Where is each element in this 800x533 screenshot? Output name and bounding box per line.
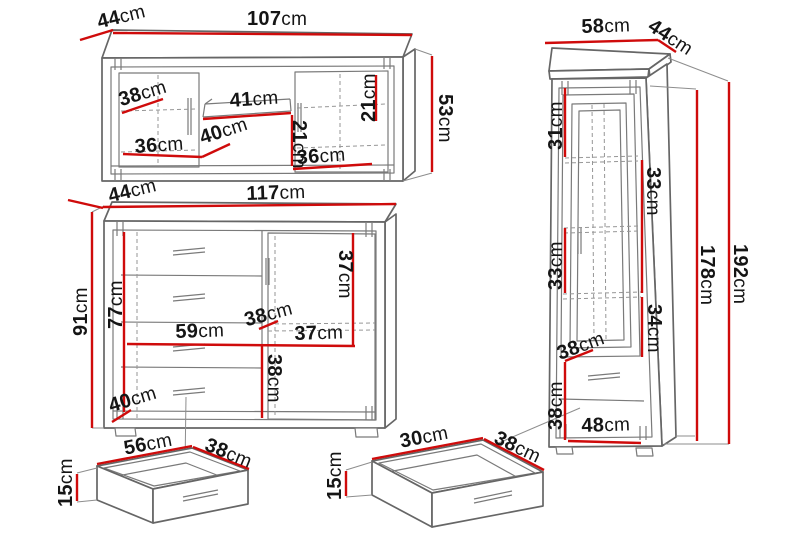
dim-cabinet-total-height: 192cm <box>728 244 751 304</box>
dim-cabinet-glass-bottom: 34cm <box>642 304 665 353</box>
dim-chest-width: 117cm <box>246 181 306 206</box>
dim-cabinet-glass-lower: 33cm <box>545 241 568 290</box>
dim-chest-door-inner-width: 37cm <box>294 321 344 346</box>
dim-drawer-right-height: 15cm <box>324 451 347 500</box>
dim-cabinet-inner-width: 48cm <box>581 413 631 438</box>
dim-cabinet-glass-top: 31cm <box>545 101 568 150</box>
dim-chest-drawers-width: 59cm <box>175 319 225 344</box>
dim-cabinet-glass-upper: 33cm <box>641 167 664 216</box>
dim-chest-inner-height: 77cm <box>105 280 128 329</box>
dim-sideboard-right-inner-width: 36cm <box>296 144 346 170</box>
dim-sideboard-left-inner-width: 36cm <box>134 133 184 159</box>
dim-drawer-left-height: 15cm <box>55 458 78 507</box>
dim-sideboard-right-inner-height: 21cm <box>358 73 381 122</box>
dim-sideboard-shelf-width: 41cm <box>229 87 279 113</box>
diagram-linework <box>0 0 800 533</box>
dim-chest-door-upper-height: 37cm <box>333 250 356 299</box>
furniture-dimension-diagram: 44cm 107cm 53cm 38cm 41cm 21cm 21cm 36cm… <box>0 0 800 533</box>
dim-chest-height: 91cm <box>70 287 93 336</box>
chest-outline <box>92 202 396 467</box>
dim-sideboard-height: 53cm <box>433 94 456 143</box>
dim-cabinet-width: 58cm <box>581 14 631 39</box>
dim-chest-door-lower-height: 38cm <box>262 354 285 403</box>
cabinet-outline <box>487 48 729 456</box>
dim-cabinet-inner-height: 178cm <box>695 245 718 305</box>
dim-cabinet-drawer-section: 38cm <box>545 381 568 430</box>
dim-sideboard-width: 107cm <box>247 8 307 31</box>
